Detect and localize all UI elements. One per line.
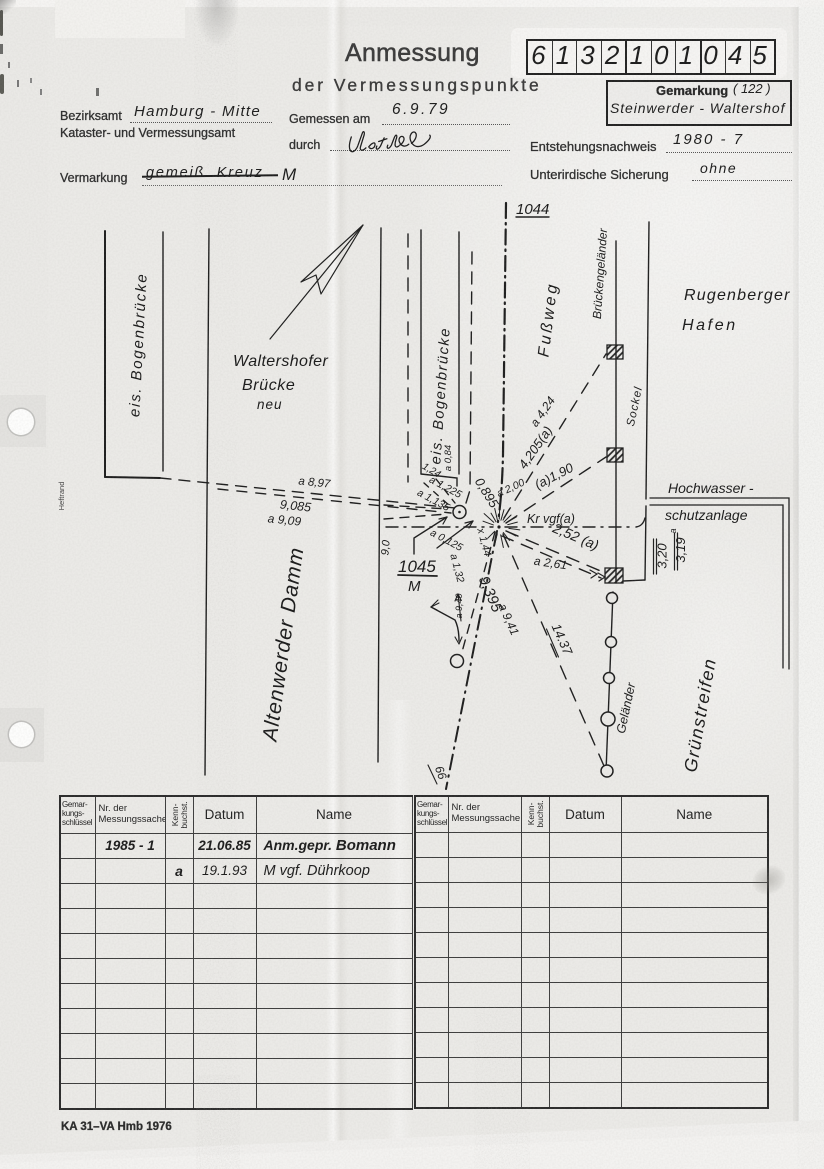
svg-text:a 9,41: a 9,41	[495, 601, 521, 637]
svg-text:a 9,40: a 9,40	[454, 593, 464, 618]
svg-text:Fußweg: Fußweg	[535, 281, 561, 358]
svg-text:a 9,09: a 9,09	[267, 511, 302, 528]
svg-text:a 1,32: a 1,32	[447, 553, 466, 584]
svg-text:Sockel: Sockel	[625, 385, 645, 427]
svg-text:1045: 1045	[398, 557, 436, 576]
svg-text:a 2,61: a 2,61	[533, 554, 568, 573]
svg-text:a 8,97: a 8,97	[298, 475, 332, 490]
svg-text:Altenwerder Damm: Altenwerder Damm	[258, 546, 308, 745]
svg-text:Rugenberger: Rugenberger	[684, 287, 791, 304]
svg-text:eis. Bogenbrücke: eis. Bogenbrücke	[126, 272, 151, 417]
svg-text:9,0: 9,0	[379, 539, 392, 556]
svg-text:Brücke: Brücke	[242, 377, 295, 394]
svg-text:4,205(a): 4,205(a)	[515, 423, 555, 471]
svg-text:Heftrand: Heftrand	[57, 482, 66, 511]
svg-text:14.37: 14.37	[549, 621, 576, 658]
svg-text:(a)1,90: (a)1,90	[532, 460, 576, 492]
svg-text:Hochwasser -: Hochwasser -	[668, 480, 754, 496]
svg-text:3,20: 3,20	[655, 543, 670, 569]
svg-text:neu: neu	[257, 397, 283, 412]
svg-text:Waltershofer: Waltershofer	[233, 353, 328, 370]
svg-text:a 0,84: a 0,84	[443, 445, 454, 471]
svg-text:a: a	[668, 528, 678, 533]
svg-text:2,52 (a): 2,52 (a)	[550, 519, 602, 553]
svg-text:schutzanlage: schutzanlage	[665, 507, 748, 523]
svg-text:x 1,44: x 1,44	[474, 526, 493, 558]
svg-text:Hafen: Hafen	[682, 317, 738, 334]
svg-text:a 2,00: a 2,00	[495, 477, 527, 500]
svg-text:3,19: 3,19	[673, 537, 688, 562]
svg-text:Brückengeländer: Brückengeländer	[590, 227, 610, 319]
svg-text:M: M	[408, 578, 421, 595]
svg-text:eis. Bogenbrücke: eis. Bogenbrücke	[428, 327, 454, 465]
svg-text:Grünstreifen: Grünstreifen	[680, 656, 720, 774]
svg-text:1044: 1044	[516, 201, 549, 218]
svg-text:Geländer: Geländer	[614, 681, 639, 735]
